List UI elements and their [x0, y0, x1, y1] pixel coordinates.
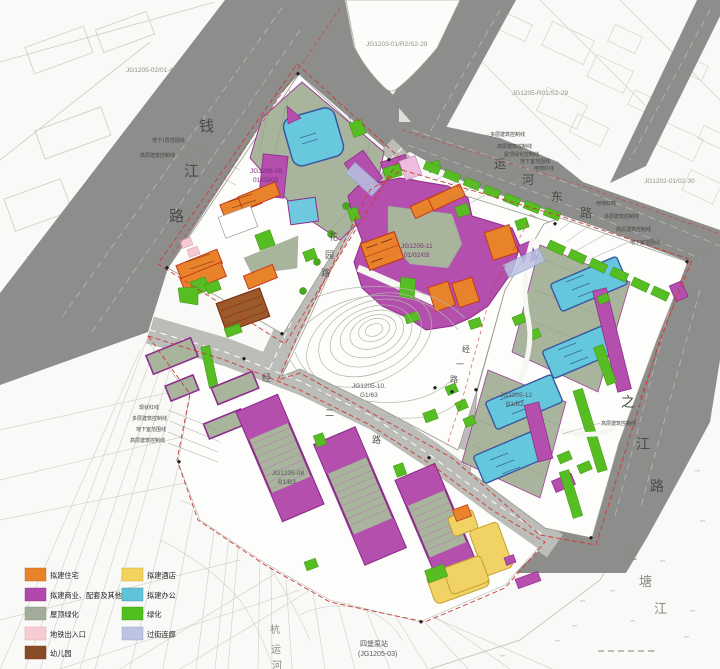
- svg-text:用地红线: 用地红线: [596, 200, 616, 207]
- svg-text:运: 运: [494, 157, 506, 171]
- svg-text:拟建酒店: 拟建酒店: [147, 571, 176, 580]
- svg-text:路: 路: [169, 208, 184, 225]
- svg-text:多层建筑控制线: 多层建筑控制线: [490, 131, 525, 138]
- svg-text:高层建筑控制线: 高层建筑控制线: [140, 152, 175, 159]
- svg-text:杭: 杭: [270, 623, 280, 636]
- svg-text:高层建筑控制线: 高层建筑控制线: [616, 226, 651, 233]
- svg-text:JG1205-08: JG1205-08: [272, 470, 305, 477]
- svg-text:高层建筑控制线: 高层建筑控制线: [601, 420, 636, 427]
- svg-text:现状红线: 现状红线: [139, 404, 159, 411]
- svg-text:JG1205-09: JG1205-09: [250, 168, 283, 175]
- svg-text:拟建办公: 拟建办公: [147, 591, 176, 600]
- svg-text:地下1层范围线: 地下1层范围线: [152, 137, 185, 144]
- svg-text:路: 路: [450, 374, 458, 384]
- svg-text:01/02/03: 01/02/03: [253, 177, 279, 184]
- svg-text:花: 花: [329, 231, 338, 242]
- svg-text:幼儿园: 幼儿园: [50, 649, 72, 658]
- svg-text:一: 一: [456, 360, 464, 369]
- svg-text:JG1203-01/R2/S2-29: JG1203-01/R2/S2-29: [366, 41, 428, 48]
- svg-text:江: 江: [636, 436, 650, 452]
- svg-text:钱: 钱: [199, 118, 214, 135]
- svg-text:绿化: 绿化: [147, 610, 161, 619]
- svg-text:地铁出入口: 地铁出入口: [50, 630, 86, 639]
- svg-text:B1/B3: B1/B3: [278, 479, 296, 486]
- svg-text:屋顶绿化: 屋顶绿化: [50, 610, 79, 619]
- svg-text:过街连廊: 过街连廊: [147, 630, 176, 639]
- svg-text:经: 经: [462, 344, 470, 354]
- svg-text:东: 东: [551, 190, 563, 204]
- svg-text:G1/63: G1/63: [360, 392, 378, 399]
- svg-text:拟建住宅: 拟建住宅: [50, 571, 79, 580]
- svg-text:路: 路: [650, 478, 664, 494]
- svg-text:园: 园: [325, 250, 334, 260]
- svg-text:地下室范围线: 地下室范围线: [630, 239, 660, 246]
- svg-text:钱: 钱: [624, 547, 637, 562]
- svg-text:JG1205-12: JG1205-12: [500, 392, 533, 399]
- svg-text:B1/B2: B1/B2: [506, 401, 524, 408]
- svg-text:多层建筑控制线: 多层建筑控制线: [604, 213, 639, 220]
- svg-text:四堡泵站: 四堡泵站: [360, 639, 388, 648]
- svg-text:JG1205-R01/S2-29: JG1205-R01/S2-29: [512, 90, 568, 97]
- svg-text:JG1202-01/02-30: JG1202-01/02-30: [644, 178, 695, 185]
- svg-text:经: 经: [262, 372, 271, 383]
- svg-text:路: 路: [321, 267, 330, 278]
- svg-text:用地红线: 用地红线: [534, 165, 554, 172]
- svg-text:01/02/03: 01/02/03: [404, 252, 430, 259]
- svg-text:JG1205-10.: JG1205-10.: [352, 383, 386, 390]
- svg-text:二: 二: [325, 408, 334, 418]
- svg-text:运: 运: [271, 644, 281, 656]
- svg-text:塘: 塘: [639, 574, 652, 589]
- svg-text:河: 河: [272, 660, 282, 669]
- svg-text:江: 江: [184, 163, 199, 180]
- svg-text:路: 路: [580, 205, 592, 220]
- svg-text:高层建筑控制线: 高层建筑控制线: [130, 437, 165, 444]
- svg-text:河: 河: [522, 173, 534, 187]
- svg-text:JG1205-11: JG1205-11: [401, 243, 433, 250]
- svg-text:地下室范围线: 地下室范围线: [136, 426, 166, 433]
- svg-text:之: 之: [621, 394, 635, 410]
- svg-text:屋顶绿化控制线: 屋顶绿化控制线: [504, 151, 539, 158]
- svg-text:拟建商业、配套及其他: 拟建商业、配套及其他: [50, 591, 122, 600]
- svg-text:(JG1205-03): (JG1205-03): [358, 651, 397, 658]
- svg-text:路: 路: [372, 434, 381, 445]
- svg-text:地下室范围线: 地下室范围线: [520, 158, 550, 165]
- svg-text:多层建筑控制线: 多层建筑控制线: [132, 415, 167, 422]
- svg-text:JG1205-02/01-47: JG1205-02/01-47: [126, 67, 177, 74]
- svg-text:江: 江: [654, 601, 667, 616]
- svg-text:高层建筑控制线: 高层建筑控制线: [497, 143, 532, 150]
